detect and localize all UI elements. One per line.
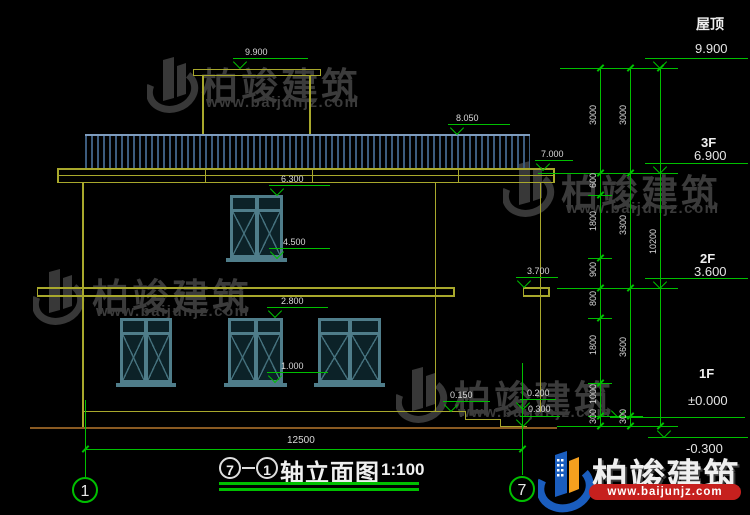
window-sill — [224, 383, 287, 387]
floor-level-value: 3.600 — [694, 264, 727, 279]
wall-line-far-right — [540, 183, 541, 412]
overall-dim-line — [85, 449, 522, 450]
dim-value: 3300 — [618, 215, 628, 235]
drawing-scale: 1:100 — [381, 460, 424, 480]
eave-end-cap — [553, 168, 555, 183]
window — [318, 318, 381, 383]
eave-slab-line — [57, 182, 555, 183]
title-underline — [219, 482, 419, 485]
floor-label-roof: 屋顶 — [696, 17, 724, 32]
dim-chain-line — [660, 68, 661, 427]
wall-line-right — [435, 183, 436, 412]
eave-slab-line — [57, 168, 555, 170]
canopy-slab-line — [523, 287, 550, 289]
roof-bulkhead-slab — [193, 69, 321, 76]
elevation-mark-0200: 0.200 — [527, 388, 550, 398]
eave-slab-line — [57, 175, 555, 176]
brand-logo-watermark-icon — [33, 266, 85, 328]
elevation-drawing-canvas: 柏竣建筑 www.baijunjz.com 柏竣建筑 www.baijunjz.… — [0, 0, 750, 515]
eave-joint-tick — [312, 168, 313, 183]
dim-value: 1000 — [588, 384, 598, 404]
canopy-end-cap — [548, 287, 550, 297]
brand-logo-watermark-icon — [147, 54, 199, 116]
title-axis-end-bubble: 1 — [256, 457, 278, 479]
dim-value: 3600 — [618, 337, 628, 357]
dim-value: 3000 — [618, 105, 628, 125]
plinth-line — [82, 411, 465, 412]
roof-railing — [85, 134, 530, 170]
dim-value: 900 — [588, 262, 598, 277]
elevation-mark-8050: 8.050 — [456, 113, 479, 123]
floor-level-value: 6.900 — [694, 148, 727, 163]
window — [120, 318, 172, 383]
elevation-mark-4500: 4.500 — [283, 237, 306, 247]
canopy-slab-line — [37, 295, 455, 297]
window-casement-mark — [352, 335, 379, 380]
wall-line-left — [82, 183, 84, 428]
step-line — [465, 419, 501, 420]
dim-value: 300 — [618, 409, 628, 424]
brand-logo-watermark-icon — [396, 364, 448, 426]
dim-value: 600 — [588, 173, 598, 188]
window-sill — [116, 383, 176, 387]
grid-bubble-7: 7 — [509, 476, 535, 502]
grid-line-1 — [85, 400, 86, 477]
floor-level-value: 9.900 — [695, 41, 728, 56]
grid-line-7 — [522, 363, 523, 475]
window-sill — [314, 383, 385, 387]
canopy-end-cap — [37, 287, 38, 297]
bulkhead-wall-line — [202, 76, 204, 134]
window-casement-mark — [321, 335, 348, 380]
window-sill — [226, 258, 287, 262]
dim-chain-line — [600, 68, 601, 427]
elevation-mark-2800: 2.800 — [281, 296, 304, 306]
eave-joint-tick — [205, 168, 206, 183]
level-line — [538, 173, 678, 174]
dim-value: 1800 — [588, 211, 598, 231]
dim-value: 3000 — [588, 105, 598, 125]
ground-line — [30, 427, 557, 429]
title-axis-dash — [242, 467, 255, 469]
dim-value: 10200 — [648, 229, 658, 254]
floor-level-value: ±0.000 — [688, 393, 728, 408]
window-casement-mark — [233, 212, 255, 255]
elevation-mark-1000: 1.000 — [281, 361, 304, 371]
eave-joint-tick — [458, 168, 459, 183]
brand-url-badge: www.baijunjz.com — [589, 484, 741, 500]
window-casement-mark — [231, 335, 254, 380]
elevation-mark-0150: 0.150 — [450, 390, 473, 400]
elevation-mark-6300: 6.300 — [281, 174, 304, 184]
canopy-slab-line — [523, 295, 550, 297]
elevation-mark-3700: 3.700 — [527, 266, 550, 276]
canopy-end-cap — [453, 287, 455, 297]
dim-value: 800 — [588, 291, 598, 306]
elevation-mark-9900: 9.900 — [245, 47, 268, 57]
eave-end-cap — [57, 168, 59, 183]
canopy-slab-line — [37, 287, 455, 289]
grid-bubble-1: 1 — [72, 477, 98, 503]
floor-label-1f: 1F — [699, 366, 714, 381]
dim-value: 300 — [588, 409, 598, 424]
window-casement-mark — [148, 335, 169, 380]
dim-chain-line — [630, 68, 631, 427]
title-axis-start-bubble: 7 — [219, 457, 241, 479]
elevation-mark-0300: 0.300 — [528, 404, 551, 414]
bulkhead-wall-line — [309, 76, 311, 134]
dim-value: 1800 — [588, 335, 598, 355]
title-underline — [219, 488, 419, 491]
watermark-url-text: www.baijunjz.com — [206, 94, 359, 111]
brand-logo-icon — [538, 447, 596, 513]
window-casement-mark — [123, 335, 144, 380]
overall-dim-value: 12500 — [287, 436, 315, 446]
